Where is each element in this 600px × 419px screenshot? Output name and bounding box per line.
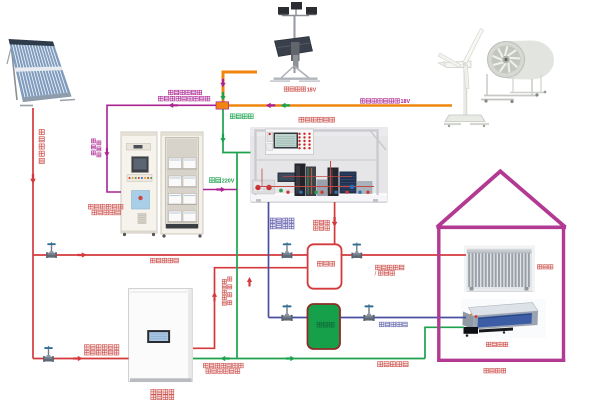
svg-text:/: / <box>375 271 377 278</box>
svg-text:18V: 18V <box>401 99 411 105</box>
svg-text:18V: 18V <box>307 87 317 93</box>
svg-text:220V: 220V <box>222 179 235 185</box>
